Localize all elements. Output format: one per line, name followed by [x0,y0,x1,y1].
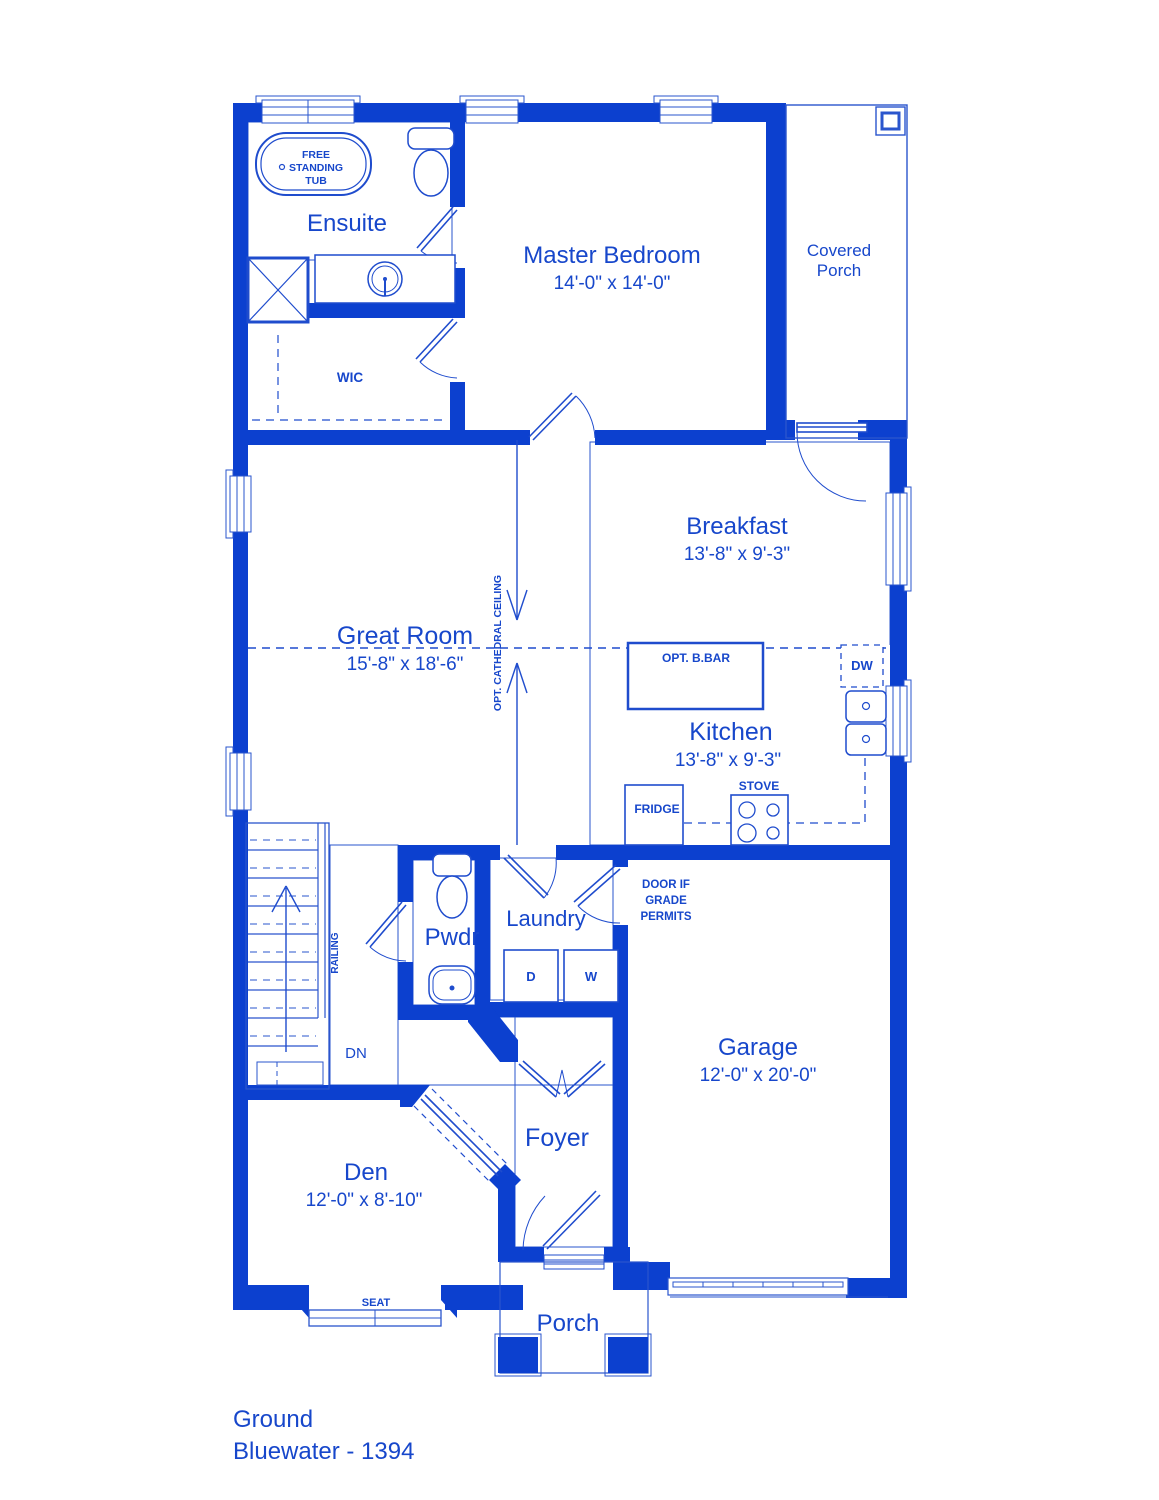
den-diagonal-door [414,1089,509,1183]
laundry-appliances [504,950,618,1002]
master-window-left [460,96,524,123]
floor-plan-drawing: Ensuite FREE STANDING TUB WIC Master Bed… [0,0,1159,1500]
dryer-label: D [526,969,535,984]
garage-label: Garage [718,1034,798,1061]
cathedral-ceiling-arrows [507,440,527,845]
kitchen-label: Kitchen [689,718,772,746]
porch-label: Porch [537,1310,600,1337]
porch-patio-door [797,423,867,501]
great-room-label: Great Room [337,622,473,650]
kitchen-dims: 13'-8" x 9'-3" [675,750,781,771]
kitchen-window [886,680,911,762]
pwdr-toilet-tank [433,854,471,876]
dn-label: DN [345,1045,367,1062]
pwdr-toilet-bowl [437,876,467,918]
breakfast-label: Breakfast [686,513,788,540]
master-bedroom-label: Master Bedroom [523,242,700,269]
stove-label: STOVE [739,779,779,793]
cathedral-ceiling-label: OPT. CATHEDRAL CEILING [492,575,504,711]
den-label: Den [344,1159,388,1186]
windows [226,96,911,816]
tub-faucet [280,165,285,170]
tub-label-2: STANDING [289,162,343,174]
tub-label-3: TUB [305,175,327,187]
great-room-window-upper [226,470,251,538]
porch-column-left [495,1334,541,1376]
foyer-double-door [519,1061,605,1097]
tub-label-1: FREE [302,149,330,161]
wic-door [416,319,457,378]
pwdr-door [366,902,406,961]
footer-plan-name: Bluewater - 1394 [233,1438,414,1465]
garage-dims: 12'-0" x 20'-0" [700,1065,817,1086]
ensuite-shower [248,258,308,322]
foyer-label: Foyer [525,1124,589,1152]
porch-column-right [605,1334,651,1376]
master-bedroom-dims: 14'-0" x 14'-0" [554,273,671,294]
great-room-window-lower [226,747,251,816]
pwdr-label: Pwdr [425,924,480,951]
washer-label: W [585,969,598,984]
ensuite-toilet [408,128,454,196]
grade-door-label-1: DOOR IF [642,879,690,891]
great-room-dims: 15'-8" x 18'-6" [347,654,464,675]
wic-label: WIC [337,370,363,385]
stove [731,795,788,845]
ensuite-label: Ensuite [307,210,387,237]
floor-plan-page: Ensuite FREE STANDING TUB WIC Master Bed… [0,0,1159,1500]
den-dims: 12'-0" x 8'-10" [306,1190,423,1211]
seat-bay-window [309,1310,441,1326]
stairs [246,823,329,1089]
breakfast-dims: 13'-8" x 9'-3" [684,544,790,565]
front-door [523,1191,600,1250]
ensuite-vanity [315,255,455,303]
master-window-right [654,96,718,123]
laundry-door [504,855,556,898]
footer-level: Ground [233,1406,313,1433]
covered-porch-label-1: Covered [807,241,871,260]
grade-door-label-2: GRADE [645,895,687,907]
under-stair-closet [257,1062,323,1085]
stairs-up-arrow [272,886,300,1052]
island-label: OPT. B.BAR [662,651,730,665]
laundry-label: Laundry [506,906,586,931]
pwdr-sink [429,966,475,1004]
master-bedroom-door [529,393,595,440]
fridge-label: FRIDGE [634,802,679,816]
porch-column-top [876,107,905,135]
railing-label: RAILING [330,932,341,973]
covered-porch-label-2: Porch [817,261,861,280]
seat-label: SEAT [362,1297,391,1309]
ensuite-window [256,96,360,123]
breakfast-window [886,487,911,591]
grade-door-label-3: PERMITS [640,911,691,923]
dishwasher-label: DW [851,658,873,673]
